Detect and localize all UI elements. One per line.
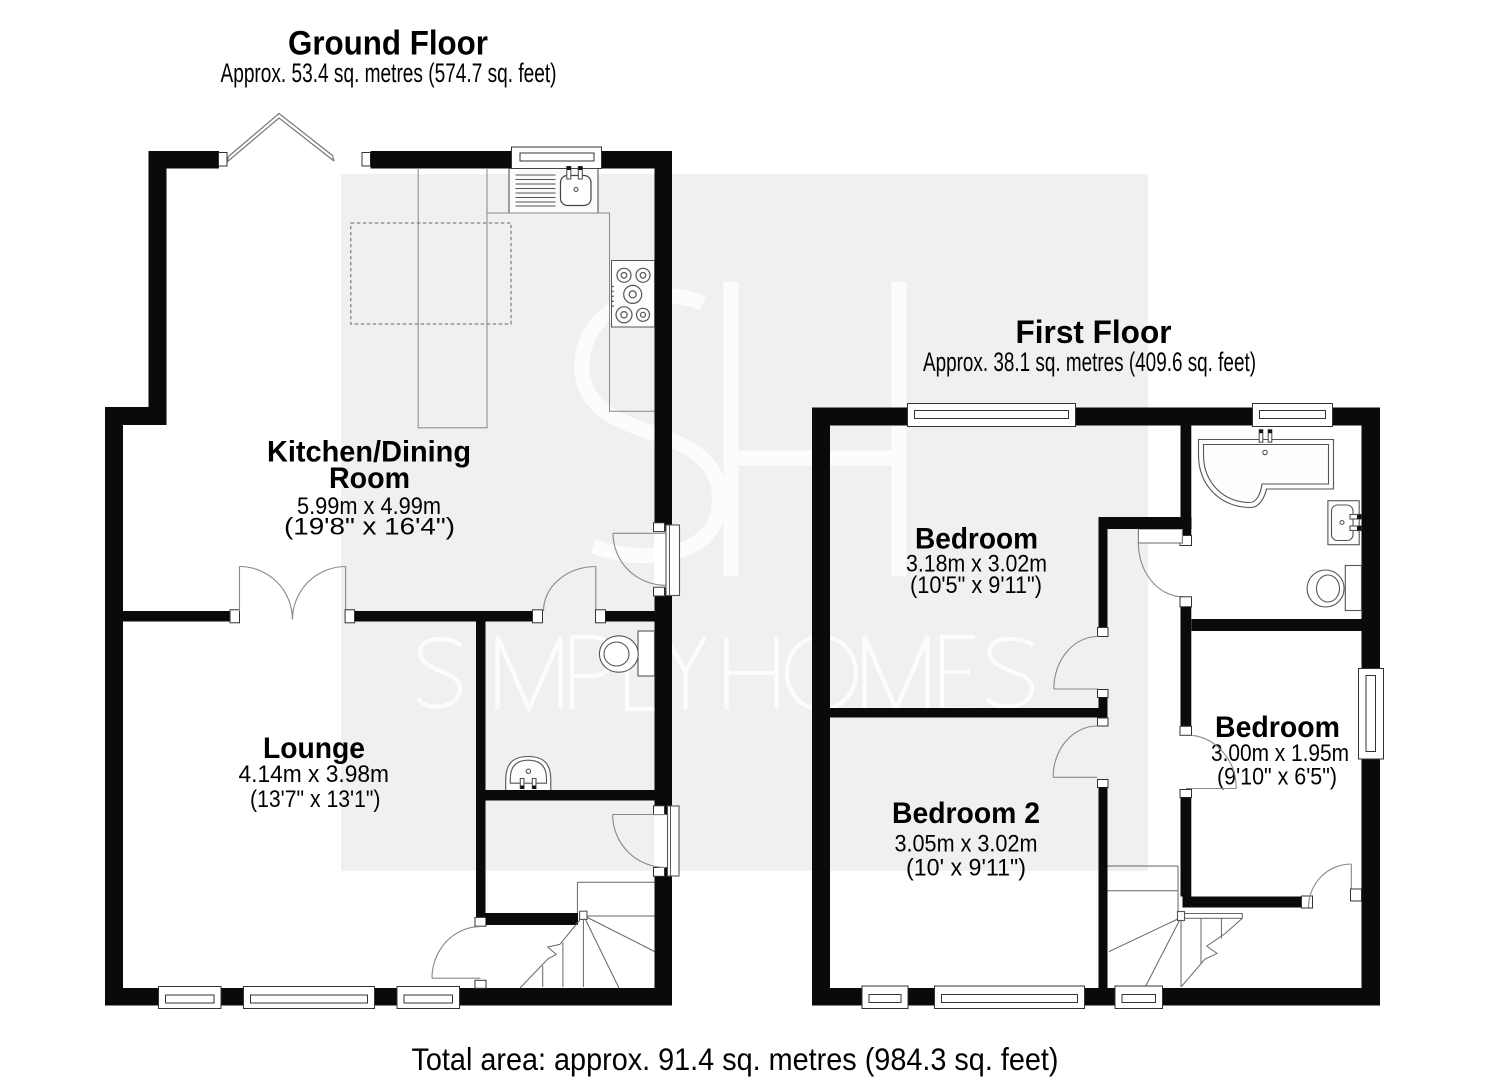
svg-text:3.05m x 3.02m: 3.05m x 3.02m bbox=[895, 831, 1038, 858]
svg-text:4.14m x 3.98m: 4.14m x 3.98m bbox=[239, 761, 390, 788]
svg-text:Approx. 38.1 sq. metres (409.6: Approx. 38.1 sq. metres (409.6 sq. feet) bbox=[923, 347, 1256, 377]
svg-text:Ground Floor: Ground Floor bbox=[288, 25, 488, 63]
svg-text:Bedroom 2: Bedroom 2 bbox=[892, 797, 1040, 830]
svg-text:Total area: approx. 91.4 sq. m: Total area: approx. 91.4 sq. metres (984… bbox=[412, 1041, 1059, 1077]
svg-text:(10'5" x 9'11"): (10'5" x 9'11") bbox=[910, 572, 1042, 599]
svg-text:Room: Room bbox=[329, 462, 410, 495]
svg-text:(19'8" x 16'4"): (19'8" x 16'4") bbox=[284, 514, 455, 541]
svg-text:Approx. 53.4 sq. metres (574.7: Approx. 53.4 sq. metres (574.7 sq. feet) bbox=[221, 58, 557, 88]
svg-text:(13'7" x 13'1"): (13'7" x 13'1") bbox=[250, 786, 381, 813]
svg-text:(10' x 9'11"): (10' x 9'11") bbox=[906, 855, 1026, 882]
svg-text:First Floor: First Floor bbox=[1016, 314, 1172, 350]
